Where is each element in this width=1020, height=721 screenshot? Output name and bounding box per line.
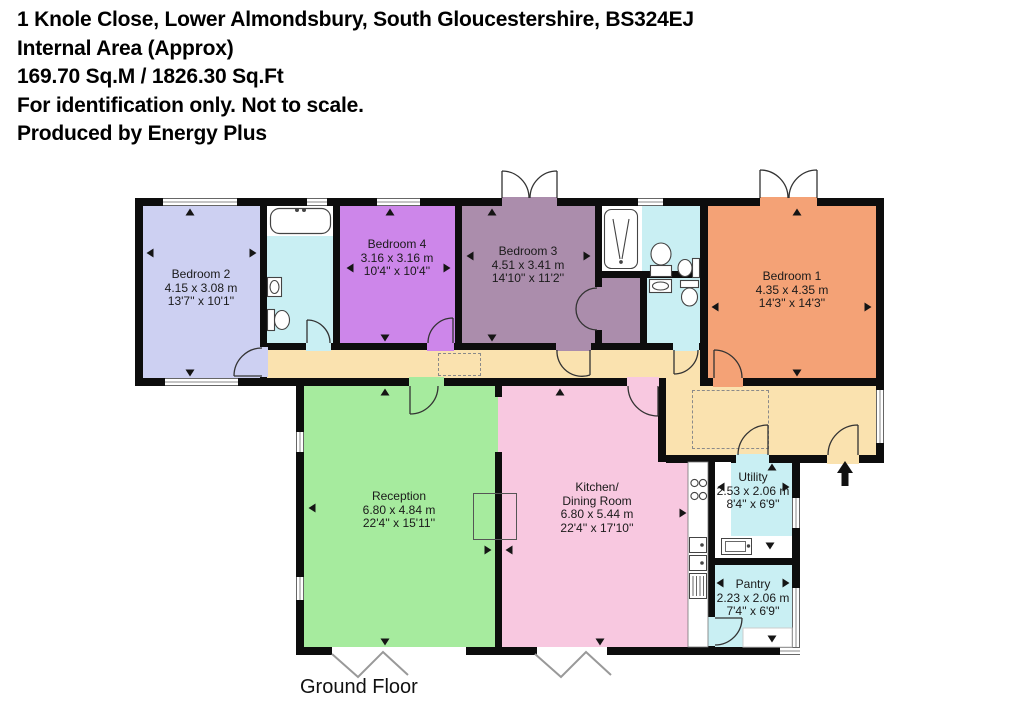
folding-door-icon [332,652,611,677]
window [307,198,327,206]
door-opening [594,287,603,330]
hallway-passage [666,378,700,386]
wall-segment [495,378,502,397]
room-name: Bedroom 1 [717,270,867,284]
room-size-ft: 22'4'' x 17'10'' [522,522,672,536]
room-size-m: 4.51 x 3.41 m [453,259,603,273]
room-size-ft: 22'4'' x 15'11'' [324,517,474,531]
window [163,198,237,206]
window [377,198,420,206]
wall-segment [602,271,700,278]
floor-label: Ground Floor [300,676,418,699]
wall-segment [296,378,304,655]
window [780,647,800,655]
room-size-m: 6.80 x 5.44 m [522,508,672,522]
room-shower-room [602,206,700,271]
wall-segment [495,452,502,647]
entrance-arrow-icon [837,461,853,486]
door-opening [707,617,716,646]
door-opening [259,347,268,377]
door-opening [627,377,659,387]
room-wc [647,278,700,343]
room-label-bedroom-2: Bedroom 2 4.15 x 3.08 m 13'7'' x 10'1'' [126,268,276,309]
door-opening [409,377,444,387]
door-opening [760,197,817,207]
room-size-m: 4.35 x 4.35 m [717,284,867,298]
dashed-storage-outline [438,353,481,376]
fireplace-outline [473,493,517,540]
window [638,198,663,206]
wall-segment [658,380,666,462]
room-size-m: 2.23 x 2.06 m [678,592,828,606]
room-name: Bedroom 4 [322,238,472,252]
wall-segment [640,278,647,350]
dashed-storage-outline [692,390,769,449]
room-label-bedroom-4: Bedroom 4 3.16 x 3.16 m 10'4'' x 10'4'' [322,238,472,279]
room-label-reception: Reception 6.80 x 4.84 m 22'4'' x 15'11'' [324,490,474,531]
floorplan-page: 1 Knole Close, Lower Almondsbury, South … [0,0,1020,721]
entrance-opening [827,454,859,464]
room-size-ft: 14'3'' x 14'3'' [717,297,867,311]
room-size-ft: 14'10'' x 11'2'' [453,272,603,286]
hallway-strip [267,350,700,378]
room-label-kitchen-dining: Kitchen/ Dining Room 6.80 x 5.44 m 22'4'… [522,481,672,535]
room-label-bedroom-1: Bedroom 1 4.35 x 4.35 m 14'3'' x 14'3'' [717,270,867,311]
door-opening [673,342,699,351]
room-label-bedroom-3: Bedroom 3 4.51 x 3.41 m 14'10'' x 11'2'' [453,245,603,286]
room-name: Reception [324,490,474,504]
door-opening [427,342,454,351]
wall-segment [466,647,537,655]
door-opening [556,342,591,351]
door-opening [502,197,557,207]
room-size-m: 2.53 x 2.06 m [678,485,828,499]
window [876,390,884,443]
door-opening [713,377,743,387]
door-opening [736,454,769,464]
door-opening [306,342,331,351]
room-size-m: 6.80 x 4.84 m [324,504,474,518]
wall-segment [708,558,800,565]
window [165,378,238,386]
room-size-m: 4.15 x 3.08 m [126,282,276,296]
room-name-2: Dining Room [522,495,672,509]
wall-segment [700,206,708,386]
room-bedroom-3-alcove [602,278,640,343]
room-name: Bedroom 3 [453,245,603,259]
room-size-ft: 7'4'' x 6'9'' [678,605,828,619]
room-size-ft: 10'4'' x 10'4'' [322,265,472,279]
room-size-ft: 8'4'' x 6'9'' [678,498,828,512]
room-name: Pantry [678,578,828,592]
room-size-ft: 13'7'' x 10'1'' [126,295,276,309]
room-name: Kitchen/ [522,481,672,495]
floorplan-drawing: Bedroom 2 4.15 x 3.08 m 13'7'' x 10'1'' … [0,0,1020,721]
room-size-m: 3.16 x 3.16 m [322,252,472,266]
window [296,432,304,452]
room-name: Bedroom 2 [126,268,276,282]
room-label-pantry: Pantry 2.23 x 2.06 m 7'4'' x 6'9'' [678,578,828,619]
wall-segment [607,647,780,655]
room-label-utility: Utility 2.53 x 2.06 m 8'4'' x 6'9'' [678,471,828,512]
room-name: Utility [678,471,828,485]
window [296,577,304,600]
